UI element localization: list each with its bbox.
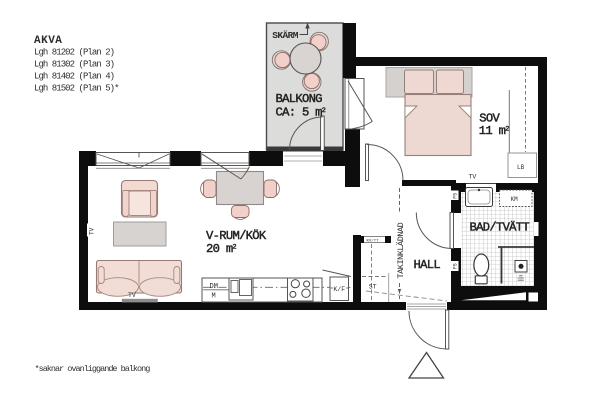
svg-text:K/F: K/F (333, 286, 345, 293)
svg-text:20 m2: 20 m2 (206, 242, 236, 256)
svg-text:F5: F5 (453, 263, 459, 269)
svg-text:11 m2: 11 m2 (479, 124, 509, 138)
svg-text:M: M (212, 293, 216, 301)
svg-text:KM: KM (511, 196, 519, 203)
svg-text:Lgh 81302 (Plan 3): Lgh 81302 (Plan 3) (34, 59, 114, 69)
svg-text:AKVA: AKVA (34, 35, 62, 47)
svg-text:SKÄRM: SKÄRM (272, 30, 298, 41)
svg-text:ST: ST (369, 284, 377, 291)
svg-text:KV/TT: KV/TT (367, 238, 380, 243)
svg-text:HALL: HALL (414, 258, 441, 272)
svg-text:BAD/TVÄTT: BAD/TVÄTT (470, 221, 530, 235)
svg-text:Lgh 81402 (Plan 4): Lgh 81402 (Plan 4) (34, 71, 114, 81)
svg-text:V-RUM/KÖK: V-RUM/KÖK (206, 229, 267, 243)
svg-text:*saknar ovanliggande balkong: *saknar ovanliggande balkong (35, 364, 151, 374)
svg-text:TV: TV (469, 174, 477, 181)
svg-text:BALKONG: BALKONG (276, 92, 323, 106)
svg-text:TV: TV (89, 227, 96, 235)
svg-text:Lgh 81202 (Plan 2): Lgh 81202 (Plan 2) (34, 47, 114, 57)
svg-text:F5: F5 (453, 193, 459, 199)
svg-text:TV: TV (128, 292, 136, 299)
svg-text:Lgh 81502 (Plan 5)*: Lgh 81502 (Plan 5)* (34, 84, 119, 94)
svg-text:TAKINKLÄDNAD: TAKINKLÄDNAD (396, 222, 406, 278)
svg-text:LB: LB (517, 164, 525, 171)
